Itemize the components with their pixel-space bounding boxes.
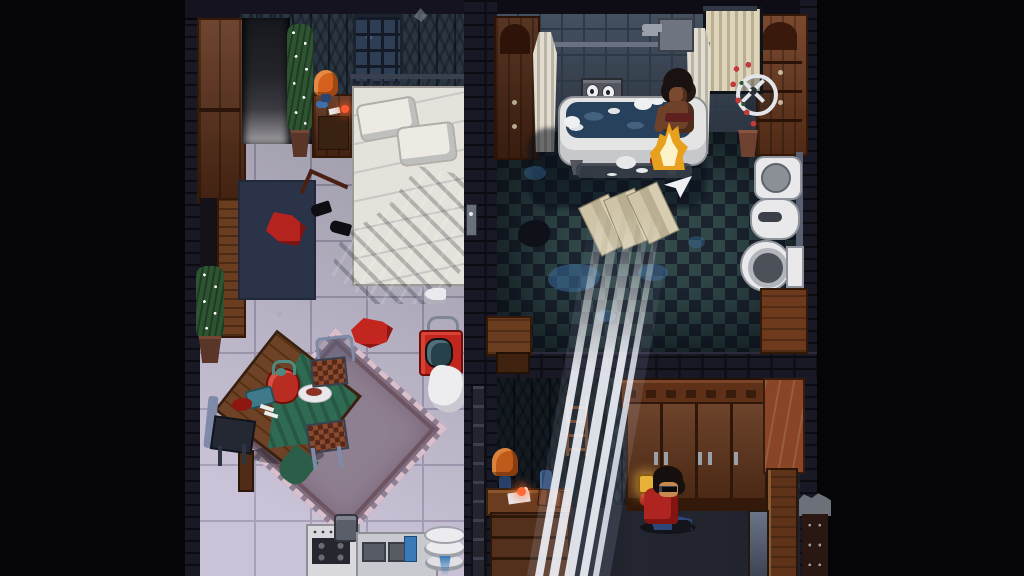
wardrobe-divider [199, 108, 240, 112]
desk-ember [517, 487, 526, 496]
cornice-inlay [626, 390, 766, 398]
open-door[interactable] [766, 468, 798, 576]
drain-pipe [471, 386, 486, 576]
wall-sink[interactable] [754, 156, 802, 200]
dresser-right-knobs [778, 70, 783, 75]
dresser-left-knobs [512, 100, 517, 105]
plate-food [306, 388, 322, 396]
dresser-left-arch [500, 24, 530, 54]
cigarette-ember [341, 105, 349, 113]
foam-3 [616, 156, 636, 169]
floor-hole [518, 220, 550, 247]
faucet-spout [642, 24, 662, 32]
top-wall-bath [497, 0, 817, 14]
wall-faucet[interactable] [658, 18, 694, 52]
curtain-rod [703, 6, 757, 11]
plant-lights-1 [287, 24, 313, 132]
table-leg-1 [238, 450, 254, 492]
sink-basin-1[interactable] [362, 542, 386, 562]
ashtray [316, 101, 328, 108]
man-sunglasses [659, 486, 677, 492]
foam-1 [564, 116, 580, 128]
dish-towel [404, 536, 417, 562]
chair-left-legs [218, 446, 222, 466]
woman-bikini-top [664, 113, 692, 122]
chair-top-seat [310, 356, 349, 388]
chimney-column [802, 514, 828, 576]
toilet-seat-ring [748, 248, 788, 288]
chimney-cap [799, 492, 831, 516]
kettle-lid [276, 368, 286, 376]
dresser-right-arch [763, 22, 797, 50]
bidet-slot [758, 212, 782, 222]
clothes-iron [424, 288, 446, 304]
puddle-5 [688, 236, 705, 248]
side-cabinet [763, 378, 805, 474]
bath-bottom-wall [497, 352, 817, 380]
plate-stack [424, 526, 466, 544]
foam-2 [634, 98, 652, 110]
storage-box [496, 352, 530, 374]
chair-bottom-seat[interactable] [305, 420, 344, 451]
puddle-4 [524, 166, 546, 180]
entry-hall [242, 18, 290, 144]
toilet-tank [786, 246, 804, 288]
toilet[interactable] [740, 240, 792, 292]
cooking-pot [334, 514, 358, 542]
sink-bowl [761, 163, 791, 193]
nightstand-door [318, 116, 349, 150]
cistern-pupils [590, 89, 594, 94]
pillow-2 [396, 121, 458, 168]
rose-plant [728, 62, 762, 132]
lamp-base [321, 94, 331, 102]
game-scene [0, 0, 1024, 576]
tv-screen [425, 338, 453, 368]
desk-lamp [492, 448, 518, 476]
wardrobe-handles [654, 452, 658, 465]
plant-lights-2 [196, 266, 224, 340]
chair-left-seat [210, 415, 256, 455]
bidet[interactable] [750, 198, 800, 240]
light-switch[interactable] [466, 204, 477, 236]
leaning-mirror [748, 510, 769, 576]
bath-cabinet [760, 288, 808, 354]
storage-bench [486, 316, 532, 356]
switch-dot [469, 212, 473, 216]
table-lamp [314, 70, 338, 96]
